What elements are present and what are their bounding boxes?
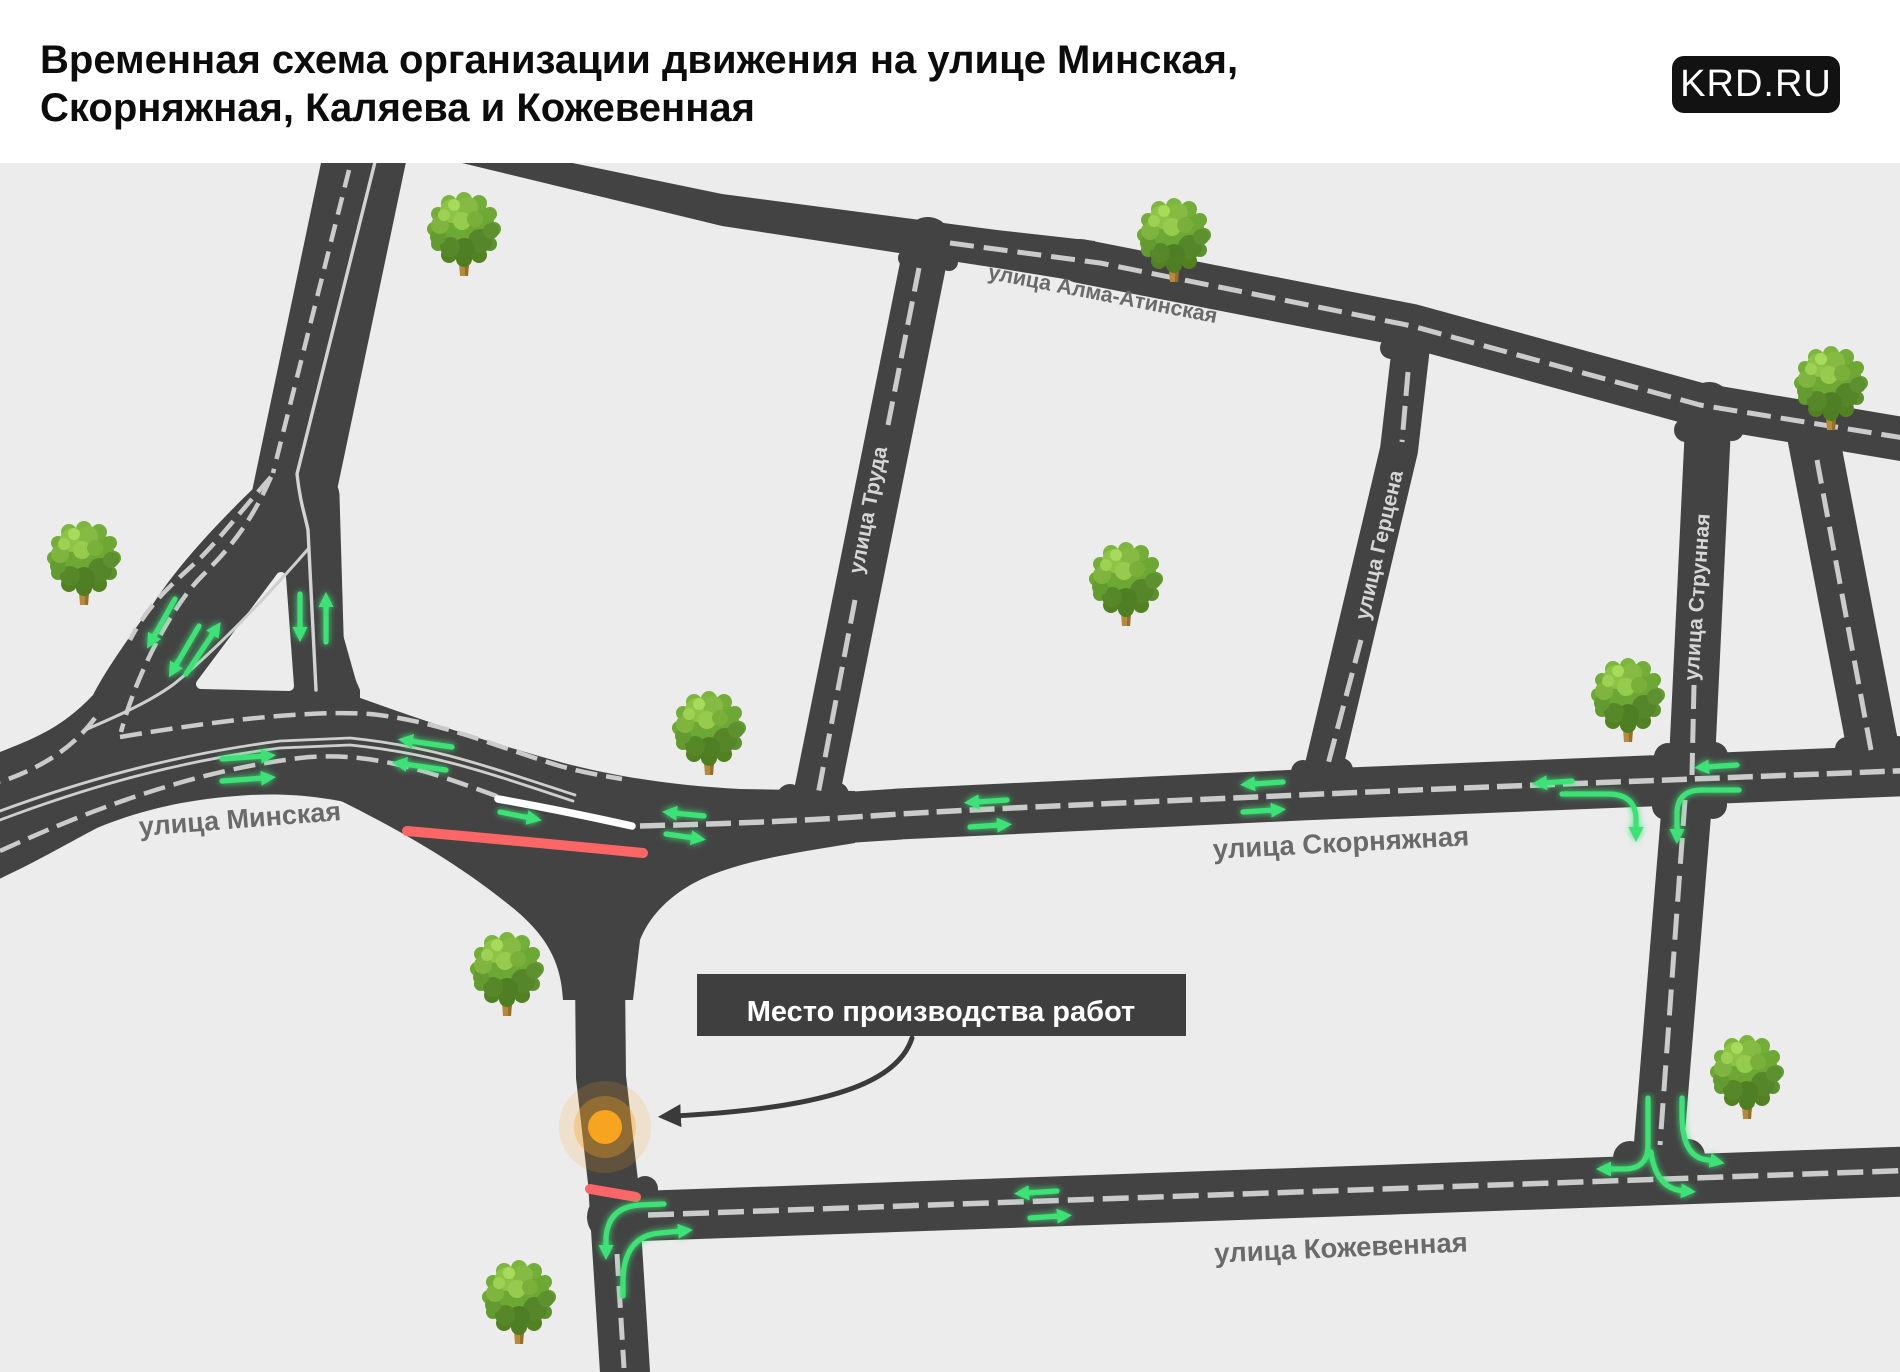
svg-text:Место производства работ: Место производства работ: [747, 996, 1136, 1028]
